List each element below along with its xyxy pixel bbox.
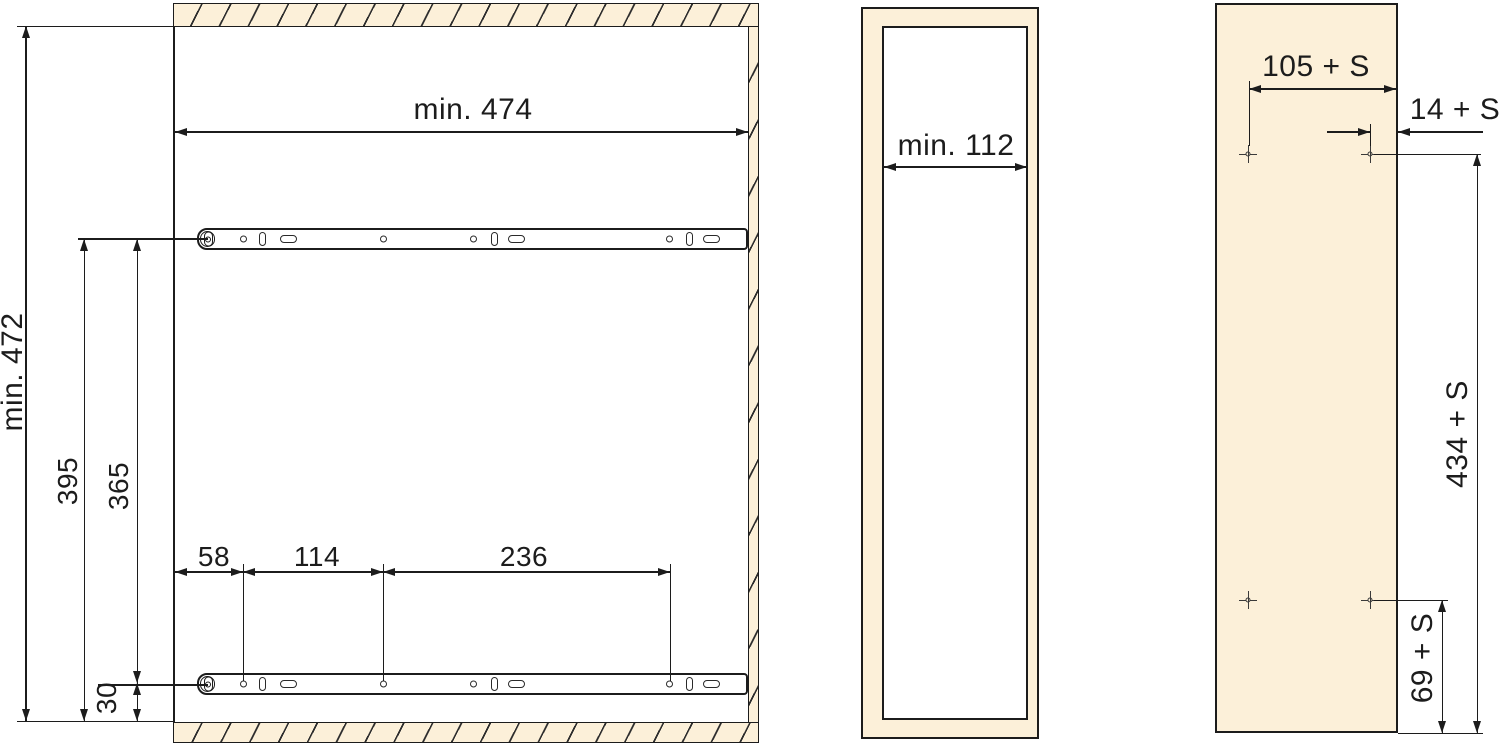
mounting-panel xyxy=(1215,3,1398,733)
cabinet-bottom-panel-hatch xyxy=(173,722,759,743)
dimension-line-69S xyxy=(1442,600,1444,733)
dimension-label-30: 30 xyxy=(91,682,123,714)
cabinet-top-panel-hatch xyxy=(173,3,759,27)
rail-slot-vertical xyxy=(491,232,498,246)
extension-line-hole-58 xyxy=(243,564,245,681)
rail-slot-horizontal xyxy=(703,235,720,243)
drill-center-dot xyxy=(1246,598,1251,603)
leader-line-top-hole xyxy=(1374,154,1481,156)
drawer-slide-rail-top xyxy=(197,228,748,250)
leader-line-bottom-hole xyxy=(1374,600,1448,602)
cabinet-right-panel-hatch xyxy=(748,26,759,723)
rail-slot-vertical xyxy=(686,232,693,246)
dimension-label-105S: 105 + S xyxy=(1262,50,1370,84)
rail-slot-horizontal xyxy=(280,235,297,243)
dimension-label-inner-width: min. 474 xyxy=(413,93,532,127)
extension-line-hole-114 xyxy=(383,564,385,681)
drill-mark-bottom-left xyxy=(1239,591,1257,609)
dimension-line-14S-right-segment xyxy=(1398,131,1483,133)
dimension-line-module-width xyxy=(884,166,1027,168)
dimension-label-module-width: min. 112 xyxy=(898,129,1015,163)
drill-center-dot xyxy=(1368,152,1373,157)
dimension-line-inner-width xyxy=(175,131,748,133)
dimension-label-236: 236 xyxy=(500,541,548,573)
dimension-label-114: 114 xyxy=(294,541,340,573)
rail-hole-round xyxy=(666,236,673,243)
extension-line-hole-236 xyxy=(670,564,672,681)
drawer-slide-rail-bottom xyxy=(197,673,748,695)
extension-line-cabinet-bottom xyxy=(17,721,174,723)
rail-slot-vertical xyxy=(259,232,266,246)
rail-slot-horizontal xyxy=(508,235,525,243)
rail-hole-round xyxy=(240,681,247,688)
dimension-label-395: 395 xyxy=(52,457,84,505)
dimension-label-inner-height: min. 472 xyxy=(0,312,30,431)
rail-slot-vertical xyxy=(491,677,498,691)
drill-mark-top-left xyxy=(1239,145,1257,163)
extension-line-panel-bottom xyxy=(1398,733,1483,735)
rail-hole-round xyxy=(380,681,387,688)
leader-line-top-rail xyxy=(78,238,208,240)
dimension-label-14S: 14 + S xyxy=(1410,93,1500,127)
dimension-line-105S xyxy=(1249,88,1396,90)
extension-line-cabinet-top xyxy=(17,26,174,28)
dimension-line-14S-left-segment xyxy=(1327,131,1370,133)
rail-slot-horizontal xyxy=(703,680,720,688)
dimension-label-434S: 434 + S xyxy=(1441,380,1475,488)
leader-line-bottom-rail xyxy=(98,684,208,686)
dimension-label-58: 58 xyxy=(198,541,230,573)
rail-hole-round xyxy=(240,236,247,243)
extension-line-105S xyxy=(1249,81,1251,146)
rail-hole-round xyxy=(666,681,673,688)
technical-drawing-canvas: min. 474 min. 472 395 365 30 58 114 236 … xyxy=(0,0,1500,744)
rail-slot-vertical xyxy=(686,677,693,691)
rail-hole-round xyxy=(470,236,477,243)
extension-line-14S xyxy=(1370,124,1372,146)
drill-center-dot xyxy=(1368,598,1373,603)
rail-slot-horizontal xyxy=(508,680,525,688)
dimension-line-365 xyxy=(137,239,139,683)
rail-hole-round xyxy=(380,236,387,243)
dimension-line-30 xyxy=(137,683,139,721)
rail-slot-vertical xyxy=(259,677,266,691)
rail-hole-round xyxy=(470,681,477,688)
dimension-line-434S xyxy=(1477,154,1479,733)
rail-slot-horizontal xyxy=(280,680,297,688)
drill-center-dot xyxy=(1246,152,1251,157)
dimension-label-365: 365 xyxy=(103,462,135,510)
dimension-label-69S: 69 + S xyxy=(1406,613,1440,704)
